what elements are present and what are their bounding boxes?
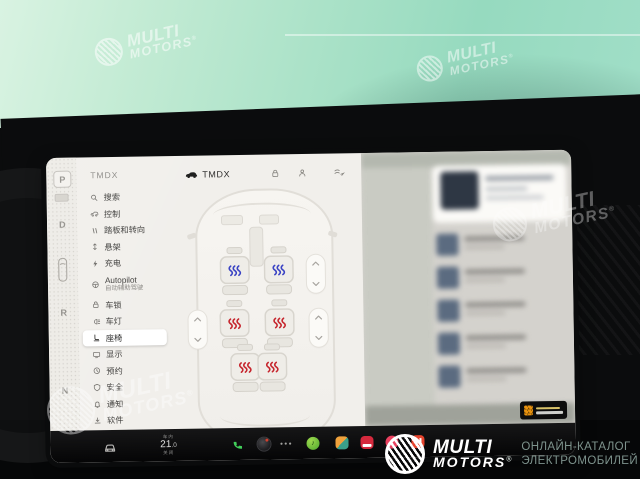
sidebar-item-label: 预约 bbox=[106, 365, 123, 377]
blurred-list-item[interactable] bbox=[435, 362, 569, 390]
sidebar-header: TMDX bbox=[90, 170, 118, 180]
pedals-icon bbox=[90, 226, 99, 235]
seat-middle-right[interactable] bbox=[264, 299, 295, 347]
seat-rear-right[interactable] bbox=[257, 343, 288, 391]
sidebar-item-schedule[interactable]: 预约 bbox=[83, 362, 167, 380]
seat-climate-icon bbox=[273, 315, 287, 329]
sidebar-item-autopilot[interactable]: Autopilot自动辅助驾驶 bbox=[82, 271, 166, 297]
phone-button[interactable] bbox=[226, 428, 248, 460]
seat-adjust-up-button[interactable] bbox=[192, 316, 202, 323]
climate-temperature-control[interactable]: 车内 21.0 关闭 bbox=[146, 429, 190, 462]
gear-reverse[interactable]: R bbox=[60, 308, 67, 318]
sidebar-menu: 搜索控制踏板和转向悬架充电Autopilot自动辅助驾驶车锁车灯座椅显示预约安全… bbox=[80, 188, 168, 429]
dock-app-tv-red[interactable] bbox=[360, 435, 373, 448]
dealer-footer: MULTI MOTORS® ОНЛАЙН-КАТАЛОГ ЭЛЕКТРОМОБИ… bbox=[385, 434, 640, 474]
cushion bbox=[260, 381, 286, 391]
charging-icon bbox=[91, 259, 100, 268]
promo-badge-icon bbox=[524, 405, 533, 415]
software-icon bbox=[93, 416, 102, 425]
seat-climate-icon bbox=[265, 359, 279, 373]
gear-selector-strip[interactable]: P D R N bbox=[46, 158, 80, 431]
sidebar-item-seats[interactable]: 座椅 bbox=[83, 329, 167, 347]
dashcam-icon bbox=[257, 437, 270, 450]
headrest bbox=[226, 300, 242, 307]
sidebar-item-safety[interactable]: 安全 bbox=[83, 378, 167, 396]
seats-icon bbox=[92, 333, 101, 342]
center-console bbox=[249, 227, 264, 267]
seat-adjust-down-button[interactable] bbox=[314, 335, 324, 342]
vehicle-top-icon bbox=[56, 256, 70, 284]
seat-front-left[interactable] bbox=[219, 247, 250, 295]
dashcam-button[interactable] bbox=[253, 427, 274, 459]
headrest bbox=[237, 344, 253, 351]
gear-drive[interactable]: D bbox=[59, 220, 66, 230]
sidebar-item-label: 通知 bbox=[107, 398, 124, 410]
schedule-icon bbox=[92, 366, 101, 375]
airflow-icon[interactable] bbox=[332, 167, 346, 177]
dealer-brand: MULTI MOTORS® bbox=[433, 439, 513, 469]
dash-block bbox=[259, 214, 279, 224]
blurred-map bbox=[361, 167, 435, 408]
dealer-caption: ОНЛАЙН-КАТАЛОГ ЭЛЕКТРОМОБИЛЕЙ bbox=[521, 440, 638, 469]
seat-adjust-middle-left bbox=[188, 310, 207, 348]
seat-middle-left[interactable] bbox=[219, 300, 250, 348]
sidebar-item-label: 座椅 bbox=[106, 332, 123, 344]
sidebar-item-locks[interactable]: 车锁 bbox=[82, 296, 166, 314]
headrest bbox=[271, 299, 287, 306]
sidebar-item-label: 车灯 bbox=[105, 315, 122, 327]
cushion bbox=[233, 382, 259, 392]
phone-icon bbox=[231, 437, 244, 450]
sidebar-item-label: 安全 bbox=[107, 381, 124, 393]
album-art bbox=[440, 171, 479, 210]
temperature-decimal: .0 bbox=[171, 442, 177, 449]
autopilot-icon bbox=[91, 280, 100, 289]
gear-status-badge bbox=[55, 194, 69, 202]
headrest bbox=[264, 343, 280, 350]
sidebar-item-label: 搜索 bbox=[104, 191, 121, 203]
blurred-list-item[interactable] bbox=[434, 263, 568, 291]
seat-climate-icon bbox=[228, 316, 242, 330]
seat-adjust-front-right bbox=[307, 255, 326, 293]
app-launcher-button[interactable]: ••• bbox=[276, 427, 297, 459]
sidebar-item-lights[interactable]: 车灯 bbox=[82, 312, 166, 330]
gear-neutral[interactable]: N bbox=[62, 386, 69, 396]
multi-motors-logo-icon bbox=[385, 434, 425, 474]
sidebar-item-controls[interactable]: 控制 bbox=[81, 205, 165, 223]
blurred-media-card[interactable] bbox=[432, 164, 567, 223]
locks-icon bbox=[91, 300, 100, 309]
blurred-list-item[interactable] bbox=[435, 329, 569, 357]
sidebar-item-label: 悬架 bbox=[104, 241, 121, 253]
sidebar-item-display[interactable]: 显示 bbox=[83, 345, 167, 363]
seat-adjust-down-button[interactable] bbox=[193, 337, 203, 344]
vehicle-name: TMDX bbox=[202, 169, 230, 179]
main-panel-header: TMDX bbox=[164, 161, 361, 186]
sidebar-item-label: 车锁 bbox=[105, 299, 122, 311]
seat-climate-icon bbox=[228, 263, 242, 277]
seat-adjust-up-button[interactable] bbox=[313, 314, 323, 321]
seat-climate-icon bbox=[272, 262, 286, 276]
dashboard-trim bbox=[572, 205, 640, 355]
showroom-photo: P D R N TMDX 搜索控制踏板和转向悬架充电Autopilot自动辅助驾… bbox=[0, 0, 640, 479]
car-front-icon bbox=[101, 439, 118, 452]
sidebar-item-sublabel: 自动辅助驾驶 bbox=[105, 284, 143, 292]
seat-adjust-up-button[interactable] bbox=[311, 260, 321, 267]
sidebar-item-pedals[interactable]: 踏板和转向 bbox=[81, 221, 165, 239]
sidebar-item-notifications[interactable]: 通知 bbox=[84, 395, 168, 413]
wall-seam bbox=[285, 34, 640, 36]
headrest bbox=[226, 247, 242, 254]
suspension-icon bbox=[90, 242, 99, 251]
sidebar-item-suspension[interactable]: 悬架 bbox=[81, 238, 165, 256]
cushion bbox=[222, 285, 248, 295]
infotainment-screen: P D R N TMDX 搜索控制踏板和转向悬架充电Autopilot自动辅助驾… bbox=[46, 150, 576, 463]
settings-sidebar: TMDX 搜索控制踏板和转向悬架充电Autopilot自动辅助驾驶车锁车灯座椅显… bbox=[76, 156, 170, 430]
map-media-region bbox=[361, 150, 575, 426]
sidebar-item-label: 充电 bbox=[105, 257, 122, 269]
notifications-icon bbox=[93, 399, 102, 408]
sidebar-item-label: 踏板和转向 bbox=[104, 224, 145, 237]
headrest bbox=[270, 246, 286, 253]
sidebar-item-label: 软件 bbox=[107, 414, 124, 426]
dash-block bbox=[221, 215, 243, 225]
temp-label-bottom: 关闭 bbox=[163, 451, 174, 456]
lights-icon bbox=[92, 317, 101, 326]
seat-adjust-down-button[interactable] bbox=[311, 281, 321, 288]
vehicle-side-icon bbox=[184, 169, 198, 179]
search-icon bbox=[90, 193, 99, 202]
safety-icon bbox=[93, 383, 102, 392]
promo-badge bbox=[520, 401, 567, 420]
seat-map bbox=[164, 185, 365, 429]
seat-front-right[interactable] bbox=[263, 246, 294, 294]
sidebar-item-charging[interactable]: 充电 bbox=[82, 254, 166, 272]
sidebar-item-label: 控制 bbox=[104, 208, 121, 220]
dock-app-video[interactable] bbox=[335, 436, 348, 449]
gear-park[interactable]: P bbox=[53, 171, 71, 188]
vehicle-settings-button[interactable] bbox=[98, 430, 120, 462]
seat-climate-icon bbox=[238, 360, 252, 374]
cushion bbox=[266, 284, 292, 294]
seat-adjust-middle-right bbox=[309, 309, 328, 347]
temperature-value: 21 bbox=[160, 439, 171, 450]
blurred-list-item[interactable] bbox=[434, 296, 568, 324]
sidebar-item-label: 显示 bbox=[106, 348, 123, 360]
display-icon bbox=[92, 350, 101, 359]
blurred-list-item[interactable] bbox=[433, 230, 567, 258]
controls-icon bbox=[90, 209, 99, 218]
lock-icon[interactable] bbox=[270, 168, 280, 178]
occupant-icon[interactable] bbox=[297, 168, 307, 178]
dock-app-music-green[interactable] bbox=[306, 436, 319, 449]
sidebar-item-search[interactable]: 搜索 bbox=[80, 188, 164, 206]
sidebar-item-software[interactable]: 软件 bbox=[84, 411, 168, 429]
